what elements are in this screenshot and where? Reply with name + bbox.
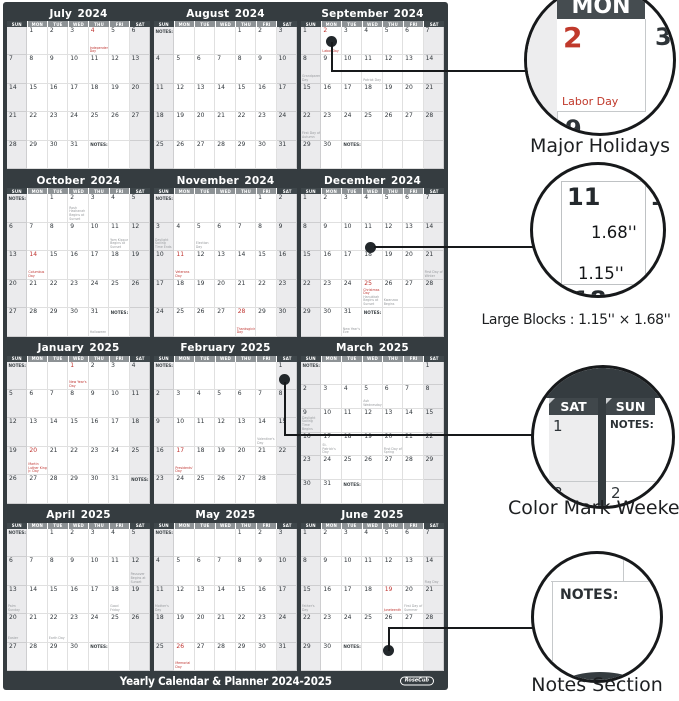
day-cell	[236, 362, 256, 390]
day-cell: 4	[342, 385, 362, 409]
notes-cell: NOTES:	[342, 480, 362, 504]
holiday-text: Easter	[8, 637, 26, 641]
day-cell: 31	[109, 475, 129, 503]
day-number: 25	[174, 308, 193, 315]
day-number: 17	[277, 586, 296, 593]
holiday-label: Presidents' Day	[175, 467, 193, 474]
notes-label: NOTES:	[301, 362, 320, 369]
holiday-text: Daylight Saving Time Ends	[155, 239, 173, 250]
month-title: May 2025	[154, 508, 297, 523]
day-number: 6	[383, 385, 402, 392]
day-number: 4	[342, 385, 361, 392]
day-number: 9	[256, 557, 275, 564]
day-number: 25	[362, 112, 381, 119]
day-number: 25	[89, 112, 108, 119]
day-number: 3	[342, 27, 361, 34]
day-number: 16	[256, 84, 275, 91]
day-number: 26	[383, 614, 402, 621]
leader-line	[388, 627, 534, 629]
day-number: 20	[7, 614, 26, 621]
month-title: September 2024	[301, 6, 444, 21]
day-cell: 19	[7, 447, 27, 475]
day-cell: 12	[195, 251, 215, 279]
day-number: 22	[27, 112, 46, 119]
day-cell: 13	[195, 84, 215, 112]
day-cell: 1	[301, 529, 321, 557]
holiday-label: Mother's Day	[155, 605, 173, 612]
day-cell: 2	[321, 529, 341, 557]
day-number: 15	[236, 586, 255, 593]
holiday-text: First Day of Spring	[384, 448, 402, 455]
day-number: 17	[109, 418, 128, 425]
day-number: 6	[7, 557, 26, 564]
day-number: 13	[27, 418, 46, 425]
day-number: 29	[48, 643, 67, 650]
day-number: 4	[195, 390, 214, 397]
day-cell	[174, 362, 194, 390]
holiday-text: Martin Luther King Jr. Day	[28, 463, 46, 474]
day-number: 28	[27, 643, 46, 650]
holiday-text: Father's Day	[302, 605, 320, 612]
day-cell: 17	[154, 280, 174, 308]
day-number: 17	[277, 84, 296, 91]
day-cell: 25	[362, 614, 382, 642]
day-cell: 27	[236, 475, 256, 503]
callout-notes-section: NOTES:	[531, 551, 663, 683]
holiday-label: Ash Wednesday	[363, 400, 381, 407]
day-cell: 4	[362, 27, 382, 55]
day-cell: 9	[48, 55, 68, 83]
day-cell	[130, 643, 150, 671]
month-grid: 12Labor Day345678Grandparents Day91011Pa…	[301, 27, 444, 169]
day-cell: 11	[342, 409, 362, 433]
day-cell: 7	[27, 223, 47, 251]
month-june-2025: June 2025SUNMONTUEWEDTHUFRISAT1234567891…	[301, 508, 444, 671]
day-number: 3	[68, 27, 87, 34]
day-number: 24	[342, 614, 361, 621]
day-cell: 21	[424, 84, 444, 112]
notes-cell: NOTES:	[7, 362, 27, 390]
day-cell: 17	[109, 418, 129, 446]
day-cell: 22	[424, 433, 444, 457]
day-cell: 11	[195, 418, 215, 446]
day-number: 4	[109, 194, 128, 201]
day-number: 18	[130, 418, 149, 425]
day-cell: 4	[154, 55, 174, 83]
day-cell: 3	[342, 27, 362, 55]
holiday-label: Rosh Hashanah Begins at Sunset	[69, 207, 87, 221]
day-cell: 11Mother's Day	[154, 586, 174, 614]
day-number: 8	[301, 55, 320, 62]
day-number: 1	[27, 27, 46, 34]
day-cell: 21	[27, 280, 47, 308]
block-date: 11	[567, 183, 600, 211]
day-cell: 11	[154, 84, 174, 112]
day-cell	[195, 529, 215, 557]
day-cell: 22	[301, 614, 321, 642]
day-number: 19	[174, 614, 193, 621]
day-cell: 21	[215, 112, 235, 140]
day-cell: 23	[48, 112, 68, 140]
day-cell: 8	[48, 223, 68, 251]
day-number: 27	[403, 112, 422, 119]
day-cell: 18	[342, 433, 362, 457]
day-number: 31	[342, 308, 361, 315]
day-number: 4	[89, 27, 108, 34]
day-number: 7	[215, 557, 234, 564]
notes-label: NOTES:	[7, 194, 26, 201]
day-cell: 11	[130, 390, 150, 418]
leader-line	[388, 627, 390, 651]
day-cell: 22	[301, 280, 321, 308]
day-cell: 27	[195, 141, 215, 169]
day-cell: 16	[301, 433, 321, 457]
notes-cell: NOTES:	[7, 529, 27, 557]
month-grid: NOTES:123456789101112Passover Begins at …	[7, 529, 150, 671]
month-title: August 2024	[154, 6, 297, 21]
holiday-text: Flag Day	[425, 581, 443, 585]
holiday-label: Election Day	[196, 242, 214, 249]
day-cell: 3Daylight Saving Time Ends	[154, 223, 174, 251]
day-number: 14	[48, 418, 67, 425]
day-cell: 13	[195, 586, 215, 614]
day-cell: 9	[321, 557, 341, 585]
day-number: 4	[109, 529, 128, 536]
day-number: 21	[424, 84, 443, 91]
day-number: 8	[301, 557, 320, 564]
day-number: 24	[109, 447, 128, 454]
day-number: 6	[403, 194, 422, 201]
day-number: 10	[68, 55, 87, 62]
day-cell: 8Grandparents Day	[301, 55, 321, 83]
day-number: 30	[321, 141, 340, 148]
day-number: 5	[383, 529, 402, 536]
day-cell	[362, 362, 382, 386]
day-cell: 15Father's Day	[301, 586, 321, 614]
day-number: 30	[256, 141, 275, 148]
day-cell	[130, 308, 150, 336]
day-cell: 17	[277, 586, 297, 614]
day-number: 19	[130, 251, 149, 258]
day-cell: 16	[154, 447, 174, 475]
day-number: 6	[130, 27, 149, 34]
day-cell: 15	[277, 418, 297, 446]
holiday-text: First Day of Summer	[404, 605, 422, 612]
day-cell: 13	[7, 251, 27, 279]
cell-border	[561, 284, 645, 285]
month-title: July 2024	[7, 6, 150, 21]
day-number: 11	[130, 390, 149, 397]
day-number: 17	[342, 84, 361, 91]
day-cell: 15	[236, 586, 256, 614]
day-cell: 3	[109, 362, 129, 390]
day-number: 6	[403, 529, 422, 536]
day-cell: 18	[154, 112, 174, 140]
leader-line	[284, 382, 286, 436]
month-grid: 123456789101112131415161718192021First D…	[301, 194, 444, 336]
day-number: 13	[195, 586, 214, 593]
notes-label: NOTES:	[154, 27, 173, 34]
day-number: 3	[154, 223, 173, 230]
day-number: 9	[321, 557, 340, 564]
day-number: 7	[27, 557, 46, 564]
day-number: 12	[215, 418, 234, 425]
day-cell: 28	[27, 308, 47, 336]
day-number: 10	[277, 55, 296, 62]
day-cell: 5	[215, 390, 235, 418]
caption-large-blocks: Large Blocks : 1.15'' × 1.68''	[473, 312, 679, 328]
day-cell: 8	[424, 385, 444, 409]
day-number: 23	[48, 112, 67, 119]
day-number: 25	[109, 280, 128, 287]
day-number: 25	[362, 280, 381, 287]
holiday-text: Patriot Day	[363, 79, 381, 83]
day-cell: 17	[89, 586, 109, 614]
month-title: January 2025	[7, 341, 150, 356]
holiday-text: Independence Day	[90, 47, 108, 54]
day-cell: 28	[403, 456, 423, 480]
day-cell: 26	[109, 112, 129, 140]
day-number: 21	[215, 112, 234, 119]
day-cell: 5Election Day	[195, 223, 215, 251]
day-cell: 15	[48, 251, 68, 279]
day-number: 22	[236, 614, 255, 621]
holiday-label: First Day of Winter	[425, 271, 443, 278]
day-number: 5	[130, 194, 149, 201]
month-august-2024: August 2024SUNMONTUEWEDTHUFRISATNOTES:12…	[154, 6, 297, 169]
day-cell: 7	[424, 194, 444, 222]
day-number: 20	[236, 447, 255, 454]
day-number: 16	[68, 251, 87, 258]
holiday-text: First Day of Winter	[425, 271, 443, 278]
calendar-product-image: July 2024SUNMONTUEWEDTHUFRISAT1234Indepe…	[0, 0, 679, 701]
day-number: 25	[195, 475, 214, 482]
day-number: 26	[195, 308, 214, 315]
day-number: 8	[277, 390, 296, 397]
notes-label: NOTES:	[154, 529, 173, 536]
day-number: 18	[362, 84, 381, 91]
day-number: 2	[48, 27, 67, 34]
day-number: 18	[109, 586, 128, 593]
day-cell	[236, 194, 256, 222]
day-cell: 28	[424, 280, 444, 308]
day-cell: 8	[301, 223, 321, 251]
day-cell: 16	[321, 586, 341, 614]
day-number: 9	[301, 409, 320, 416]
day-number: 26	[215, 475, 234, 482]
day-number: 1	[301, 194, 320, 201]
day-number: 26	[383, 280, 402, 287]
holiday-label: Halloween	[90, 331, 108, 335]
day-number: 18	[154, 112, 173, 119]
holiday-label: New Year's Day	[69, 381, 87, 388]
day-cell: 14	[7, 84, 27, 112]
day-cell: 1	[301, 27, 321, 55]
day-cell: 23	[277, 280, 297, 308]
day-number: 24	[321, 456, 340, 463]
day-cell: 27	[403, 280, 423, 308]
day-cell: 15	[301, 84, 321, 112]
day-cell: 26	[195, 308, 215, 336]
cell-border	[623, 554, 624, 581]
day-cell: 16	[89, 418, 109, 446]
day-number: 14	[403, 409, 422, 416]
day-number: 4	[154, 557, 173, 564]
day-cell	[48, 362, 68, 390]
day-number: 29	[236, 141, 255, 148]
day-number: 9	[89, 390, 108, 397]
day-number: 10	[109, 390, 128, 397]
day-cell: 22	[236, 112, 256, 140]
day-cell: 19	[130, 586, 150, 614]
day-number: 15	[424, 409, 443, 416]
day-number: 10	[89, 223, 108, 230]
day-cell: 5	[130, 529, 150, 557]
day-cell: 1	[48, 529, 68, 557]
day-cell: 7	[27, 557, 47, 585]
day-cell: 20	[403, 84, 423, 112]
corner-triangle	[549, 398, 555, 404]
holiday-label: St. Patrick's Day	[322, 444, 340, 455]
notes-cell: NOTES:	[362, 308, 382, 336]
day-number: 19	[109, 84, 128, 91]
day-cell: 9Daylight Saving Time Begins	[301, 409, 321, 433]
day-cell	[215, 27, 235, 55]
day-number: 22	[68, 447, 87, 454]
day-cell	[383, 480, 403, 504]
day-cell: 12Passover Begins at Sunset	[130, 557, 150, 585]
month-march-2025: March 2025SUNMONTUEWEDTHUFRISATNOTES:123…	[301, 341, 444, 504]
day-cell: 4	[362, 529, 382, 557]
day-cell: 3	[277, 529, 297, 557]
day-cell	[215, 529, 235, 557]
day-number: 15	[48, 251, 67, 258]
day-cell: 14	[403, 409, 423, 433]
leader-line	[331, 42, 333, 72]
day-number: 31	[89, 308, 108, 315]
day-number: 8	[68, 390, 87, 397]
day-cell: 22First Day of Autumn	[301, 112, 321, 140]
day-cell: 10	[89, 557, 109, 585]
day-number: 8	[236, 557, 255, 564]
day-cell: 13	[236, 418, 256, 446]
day-number: 1	[277, 362, 296, 369]
day-number: 16	[68, 586, 87, 593]
day-cell	[383, 141, 403, 169]
day-cell: 29	[256, 308, 276, 336]
day-number: 13	[195, 84, 214, 91]
day-number: 14	[7, 84, 26, 91]
day-cell: 12	[215, 418, 235, 446]
day-cell: 9	[256, 55, 276, 83]
day-cell: 5	[130, 194, 150, 222]
day-number: 13	[7, 586, 26, 593]
day-number: 6	[27, 390, 46, 397]
sunday-header: SUN	[606, 398, 655, 415]
day-cell: 20	[130, 84, 150, 112]
day-cell: 2Rosh Hashanah Begins at Sunset	[68, 194, 88, 222]
day-number: 23	[154, 475, 173, 482]
day-cell: 6	[27, 390, 47, 418]
day-number: 19	[215, 447, 234, 454]
day-number: 20	[130, 84, 149, 91]
day-cell: 16	[48, 84, 68, 112]
day-cell: 5Ash Wednesday	[362, 385, 382, 409]
day-cell: 19	[130, 251, 150, 279]
day-number: 28	[424, 112, 443, 119]
day-cell	[362, 141, 382, 169]
day-cell: 22Earth Day	[48, 614, 68, 642]
month-grid: 1234Independence Day56789101112131415161…	[7, 27, 150, 169]
day-cell: 17Presidents' Day	[174, 447, 194, 475]
day-number: 28	[27, 308, 46, 315]
day-number: 30	[321, 643, 340, 650]
day-number: 28	[7, 141, 26, 148]
notes-label: NOTES:	[362, 308, 381, 315]
day-cell: 10	[277, 557, 297, 585]
day-cell: 6	[195, 55, 215, 83]
day-cell: 4Independence Day	[89, 27, 109, 55]
day-number: 24	[342, 112, 361, 119]
holiday-text: First Day of Autumn	[302, 132, 320, 139]
day-cell	[7, 27, 27, 55]
holiday-label: Passover Begins at Sunset	[131, 573, 149, 584]
month-grid: NOTES:123Daylight Saving Time Ends45Elec…	[154, 194, 297, 336]
holiday-text: Juneteenth	[384, 609, 402, 613]
day-cell: 28	[27, 643, 47, 671]
leader-line	[284, 434, 533, 436]
day-cell: 14Columbus Day	[27, 251, 47, 279]
saturday-header: SAT	[549, 398, 598, 415]
holiday-label: Juneteenth	[384, 609, 402, 613]
day-cell: 15	[256, 251, 276, 279]
day-cell: 25	[109, 280, 129, 308]
day-cell: 12	[174, 84, 194, 112]
day-number: 14	[256, 418, 275, 425]
notes-cell: NOTES:	[154, 194, 174, 222]
day-cell	[403, 480, 423, 504]
day-cell: 29	[301, 141, 321, 169]
day-cell	[362, 643, 382, 671]
block-width-label: 1.15''	[578, 264, 624, 283]
day-cell: 29	[424, 456, 444, 480]
day-cell: 8	[27, 55, 47, 83]
holiday-text: Ash Wednesday	[363, 400, 381, 407]
day-cell: 27	[383, 456, 403, 480]
day-number: 6	[7, 223, 26, 230]
month-title: April 2025	[7, 508, 150, 523]
day-cell	[27, 194, 47, 222]
day-cell: 21First Day of Winter	[424, 251, 444, 279]
day-cell: 22	[48, 280, 68, 308]
month-grid: NOTES:1234567891011121314151617181920212…	[154, 27, 297, 169]
day-cell: 24	[68, 112, 88, 140]
day-cell: 3	[68, 27, 88, 55]
day-cell: 19	[383, 251, 403, 279]
day-cell: 20First Day of Summer	[403, 586, 423, 614]
day-cell: 15	[48, 586, 68, 614]
day-cell: 13	[27, 418, 47, 446]
day-cell: 4	[362, 194, 382, 222]
month-title: October 2024	[7, 173, 150, 188]
day-number: 7	[27, 223, 46, 230]
day-cell: 29	[236, 643, 256, 671]
day-number: 22	[301, 280, 320, 287]
day-number: 5	[383, 27, 402, 34]
day-cell: 15	[301, 251, 321, 279]
day-number: 5	[362, 385, 381, 392]
notes-cell: NOTES:	[342, 643, 362, 671]
